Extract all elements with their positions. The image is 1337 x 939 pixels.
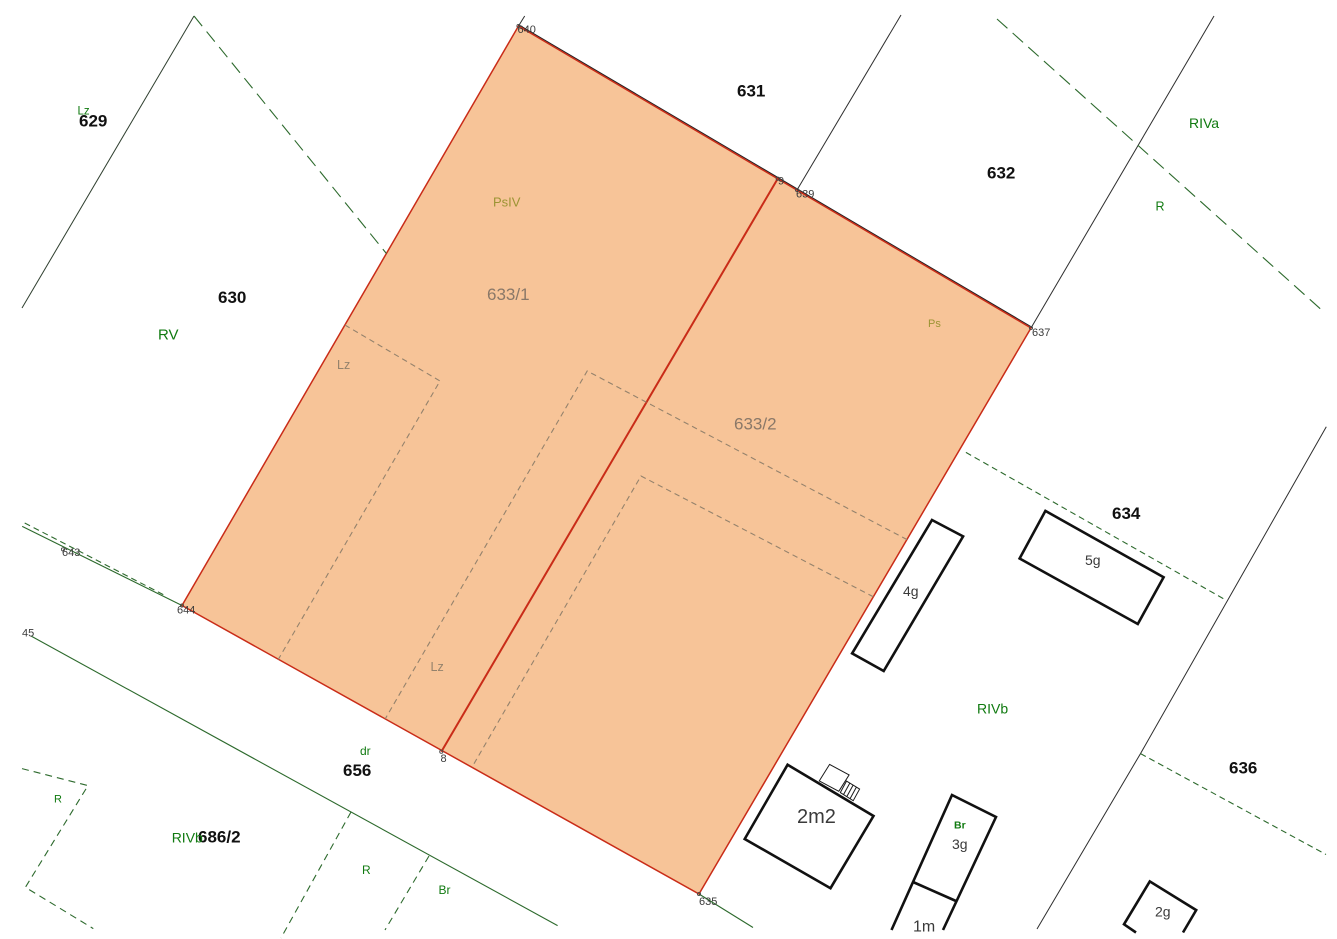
svg-text:630: 630 xyxy=(218,288,246,307)
svg-text:9: 9 xyxy=(778,176,784,188)
svg-text:R: R xyxy=(1156,200,1165,214)
svg-text:640: 640 xyxy=(518,24,536,36)
svg-text:639: 639 xyxy=(796,189,814,201)
svg-text:Br: Br xyxy=(954,820,966,832)
svg-text:634: 634 xyxy=(1112,504,1141,523)
svg-text:RIVa: RIVa xyxy=(1189,115,1219,131)
svg-text:656: 656 xyxy=(343,761,371,780)
svg-text:RIVb: RIVb xyxy=(977,701,1008,717)
svg-text:2g: 2g xyxy=(1155,904,1171,920)
svg-text:R: R xyxy=(54,794,62,806)
svg-text:RIVb: RIVb xyxy=(172,830,203,846)
svg-text:Ps: Ps xyxy=(928,318,941,330)
svg-text:631: 631 xyxy=(737,82,765,101)
svg-text:643: 643 xyxy=(62,547,80,559)
svg-text:8: 8 xyxy=(441,753,447,765)
svg-text:4g: 4g xyxy=(903,583,919,599)
svg-text:PsIV: PsIV xyxy=(493,195,521,210)
svg-text:632: 632 xyxy=(987,164,1015,183)
svg-text:2m2: 2m2 xyxy=(797,806,836,828)
svg-text:5g: 5g xyxy=(1085,552,1101,568)
svg-text:637: 637 xyxy=(1032,327,1050,339)
svg-text:686/2: 686/2 xyxy=(198,828,241,847)
svg-text:Lz: Lz xyxy=(431,660,444,674)
svg-text:dr: dr xyxy=(360,744,371,758)
svg-text:Lz: Lz xyxy=(337,358,350,372)
svg-text:45: 45 xyxy=(22,628,34,640)
svg-text:636: 636 xyxy=(1229,759,1257,778)
svg-text:R: R xyxy=(362,863,371,877)
svg-text:635: 635 xyxy=(699,896,717,908)
svg-text:RV: RV xyxy=(158,327,179,344)
svg-text:Br: Br xyxy=(439,883,451,897)
svg-text:644: 644 xyxy=(177,605,195,617)
svg-text:633/1: 633/1 xyxy=(487,285,530,304)
svg-text:1m: 1m xyxy=(913,919,935,936)
svg-text:Lz: Lz xyxy=(78,106,90,118)
svg-text:633/2: 633/2 xyxy=(734,415,777,434)
svg-text:3g: 3g xyxy=(952,836,968,852)
